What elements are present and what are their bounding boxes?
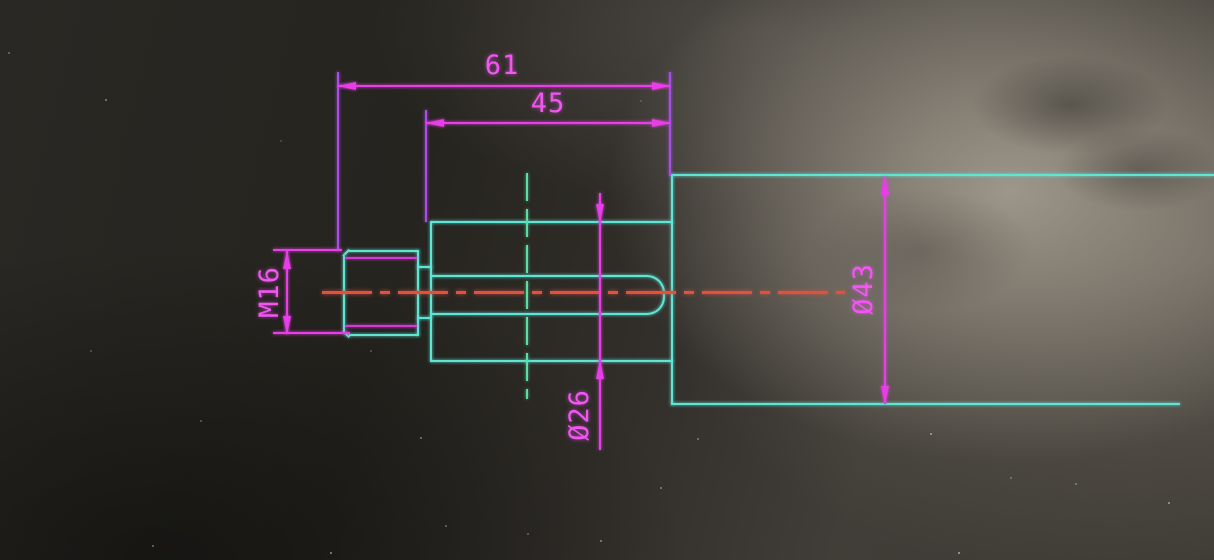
arrow-dia26-bottom [596,361,604,379]
dim-text-m16: M16 [256,247,284,337]
thread-bottom-edge [349,334,419,336]
body43-bottom-edge [671,403,1180,405]
thread-top-edge [349,250,419,252]
dim-text-45: 45 [508,90,588,118]
body43-top-edge [671,174,1214,176]
cyl26-bottom-edge [431,360,673,362]
dim-text-dia26: Ø26 [566,372,594,458]
cyl26-top-edge [431,221,673,223]
ext-line-61-left [337,72,339,251]
dim-text-61: 61 [462,52,542,80]
centerline-vertical [526,173,528,399]
thread-minor-line-bottom [345,325,417,327]
arrow-45-right [652,119,670,127]
arrow-61-right [652,82,670,90]
neck-bottom-edge [417,317,432,319]
dim-line-45 [426,122,670,124]
arrow-61-left [338,82,356,90]
arrow-m16-bottom [283,316,291,334]
thread-minor-line-top [345,257,417,259]
centerline-horizontal [322,291,845,294]
arrow-45-left [426,119,444,127]
thread-chamfer-top [342,249,350,257]
dim-line-dia43 [884,177,886,404]
cad-drawing-photo: 61 45 M16 Ø26 Ø43 [0,0,1214,560]
arrow-dia43-bottom [881,386,889,404]
dim-text-dia43: Ø43 [850,246,878,332]
dim-line-dia26 [599,193,601,450]
dust-specks [0,0,2,2]
keyway-slot-outline [431,275,665,315]
dim-line-61 [338,85,670,87]
neck-top-edge [417,266,432,268]
body43-left-face [671,174,673,405]
arrow-dia26-top [596,204,604,222]
arrow-dia43-top [881,177,889,195]
